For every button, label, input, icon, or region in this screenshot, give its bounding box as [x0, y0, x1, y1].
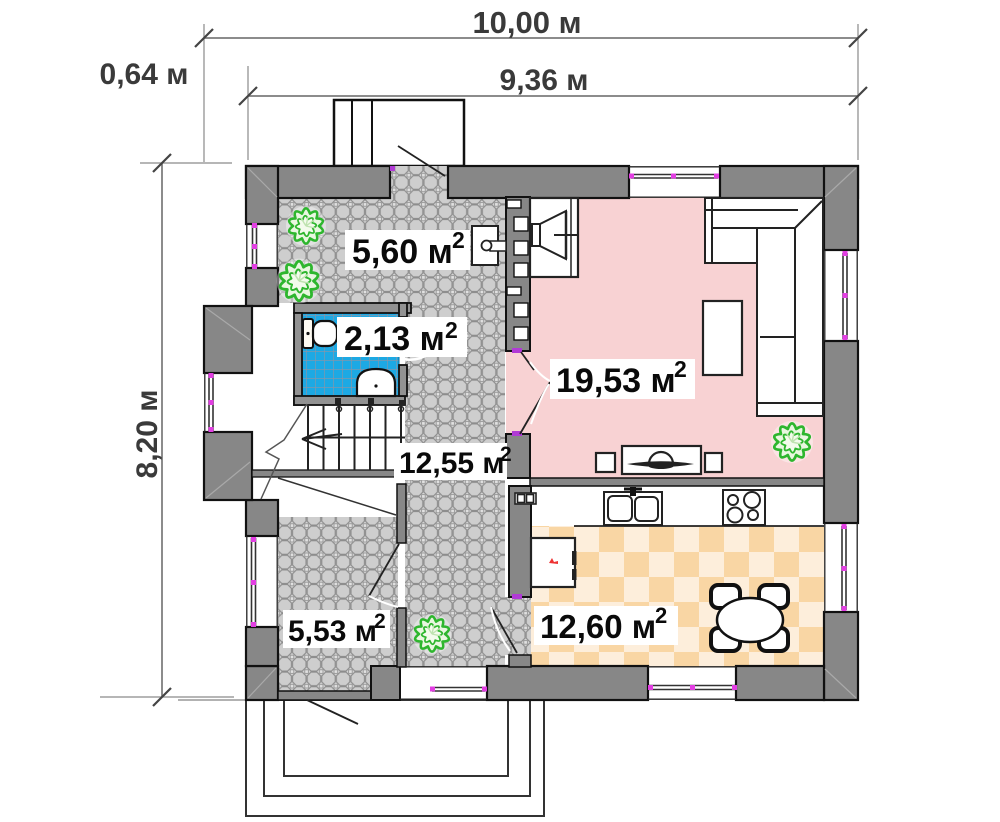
svg-text:0,64 м: 0,64 м [100, 58, 189, 91]
svg-text:2: 2 [500, 443, 512, 466]
svg-text:2: 2 [452, 227, 465, 253]
svg-text:10,00 м: 10,00 м [472, 5, 581, 40]
svg-text:2,13 м: 2,13 м [344, 320, 445, 358]
svg-text:12,55 м: 12,55 м [399, 447, 505, 480]
svg-text:2: 2 [674, 356, 687, 382]
svg-text:12,60 м: 12,60 м [540, 608, 656, 645]
svg-text:19,53 м: 19,53 м [556, 362, 676, 400]
svg-text:2: 2 [655, 603, 667, 628]
svg-text:5,53 м: 5,53 м [288, 615, 377, 648]
svg-text:2: 2 [374, 610, 386, 633]
svg-text:2: 2 [445, 317, 458, 343]
svg-text:5,60 м: 5,60 м [352, 233, 453, 271]
svg-text:8,20 м: 8,20 м [131, 390, 164, 479]
svg-text:9,36 м: 9,36 м [500, 64, 589, 97]
